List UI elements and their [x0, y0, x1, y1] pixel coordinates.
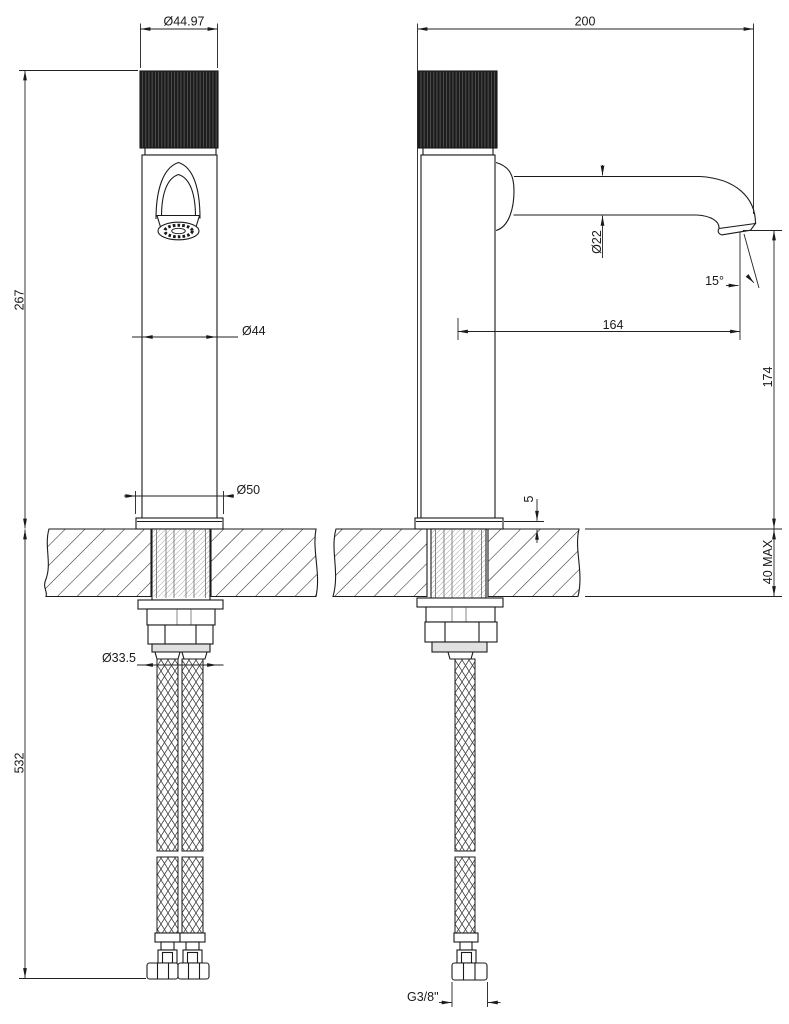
base-plate-front — [136, 518, 223, 529]
dim-outlet-angle: 15° — [705, 234, 759, 288]
handle-neck-side — [423, 148, 493, 155]
handle-diameter-label: Ø44.97 — [163, 15, 204, 29]
hose-nut-side — [452, 963, 487, 980]
body-diameter-label: Ø44 — [242, 324, 266, 338]
base-plate-height-label: 5 — [522, 495, 536, 502]
deck-piece-mid-right — [333, 529, 427, 597]
outlet-height-label: 174 — [761, 367, 775, 388]
hose-drop-length-label: 532 — [13, 753, 27, 774]
spout-tube-bottom — [514, 215, 720, 229]
spout-tube-top — [514, 177, 756, 224]
dim-spout-tube-diameter: Ø22 — [590, 165, 604, 258]
max-deck-thickness-label: 40 MAX — [761, 539, 775, 584]
overall-depth-label: 200 — [575, 15, 596, 29]
faucet-technical-drawing: Ø44.97 267 532 Ø44 Ø50 Ø33.5 200 — [0, 0, 789, 1024]
spout-outlet-tip — [718, 224, 755, 235]
locknut-assembly-front — [138, 600, 223, 659]
hose-right-upper — [182, 659, 203, 851]
dim-supply-connection: G3/8" — [407, 982, 501, 1007]
mounting-shank-side — [431, 529, 486, 600]
hose-left-lower — [157, 857, 178, 933]
spout-reach-label: 164 — [603, 318, 624, 332]
deck-piece-left — [45, 529, 151, 597]
spout-base-collar — [496, 163, 514, 231]
front-view — [136, 71, 223, 979]
base-plate-side — [415, 518, 503, 529]
flexible-hoses-front — [147, 659, 209, 979]
locknut-assembly-side — [417, 598, 503, 659]
deck-piece-mid-left — [211, 529, 318, 597]
shank-diameter-label: Ø33.5 — [102, 651, 136, 665]
countertop-section — [45, 529, 580, 597]
height-above-deck-label: 267 — [13, 290, 27, 311]
dim-max-deck-thickness: 40 MAX — [585, 529, 782, 597]
deck-piece-right — [488, 529, 580, 597]
dim-height-above-deck: 267 — [13, 71, 139, 529]
faucet-technical-drawing-page: Ø44.97 267 532 Ø44 Ø50 Ø33.5 200 — [0, 0, 789, 1024]
supply-connection-label: G3/8" — [407, 990, 439, 1004]
flexible-hose-side — [452, 659, 487, 980]
hose-right-lower — [182, 857, 203, 933]
outlet-angle-label: 15° — [705, 274, 724, 288]
aerator-center — [172, 228, 186, 233]
handle-knurled-front — [140, 71, 218, 148]
hose-side-lower — [455, 857, 475, 933]
dim-handle-diameter: Ø44.97 — [141, 15, 218, 69]
spout-tube-diameter-label: Ø22 — [590, 230, 604, 254]
hose-left-upper — [157, 659, 178, 851]
faucet-body-front — [142, 155, 217, 520]
side-view — [415, 71, 756, 980]
base-diameter-label: Ø50 — [237, 483, 261, 497]
handle-knurled-side — [418, 71, 497, 148]
hose-nut-left — [147, 963, 178, 979]
mounting-shank-front — [152, 529, 210, 600]
hose-side-upper — [455, 659, 475, 851]
handle-neck-front — [145, 148, 216, 155]
hose-nut-right — [178, 963, 209, 979]
dim-outlet-height: 174 — [743, 231, 782, 529]
